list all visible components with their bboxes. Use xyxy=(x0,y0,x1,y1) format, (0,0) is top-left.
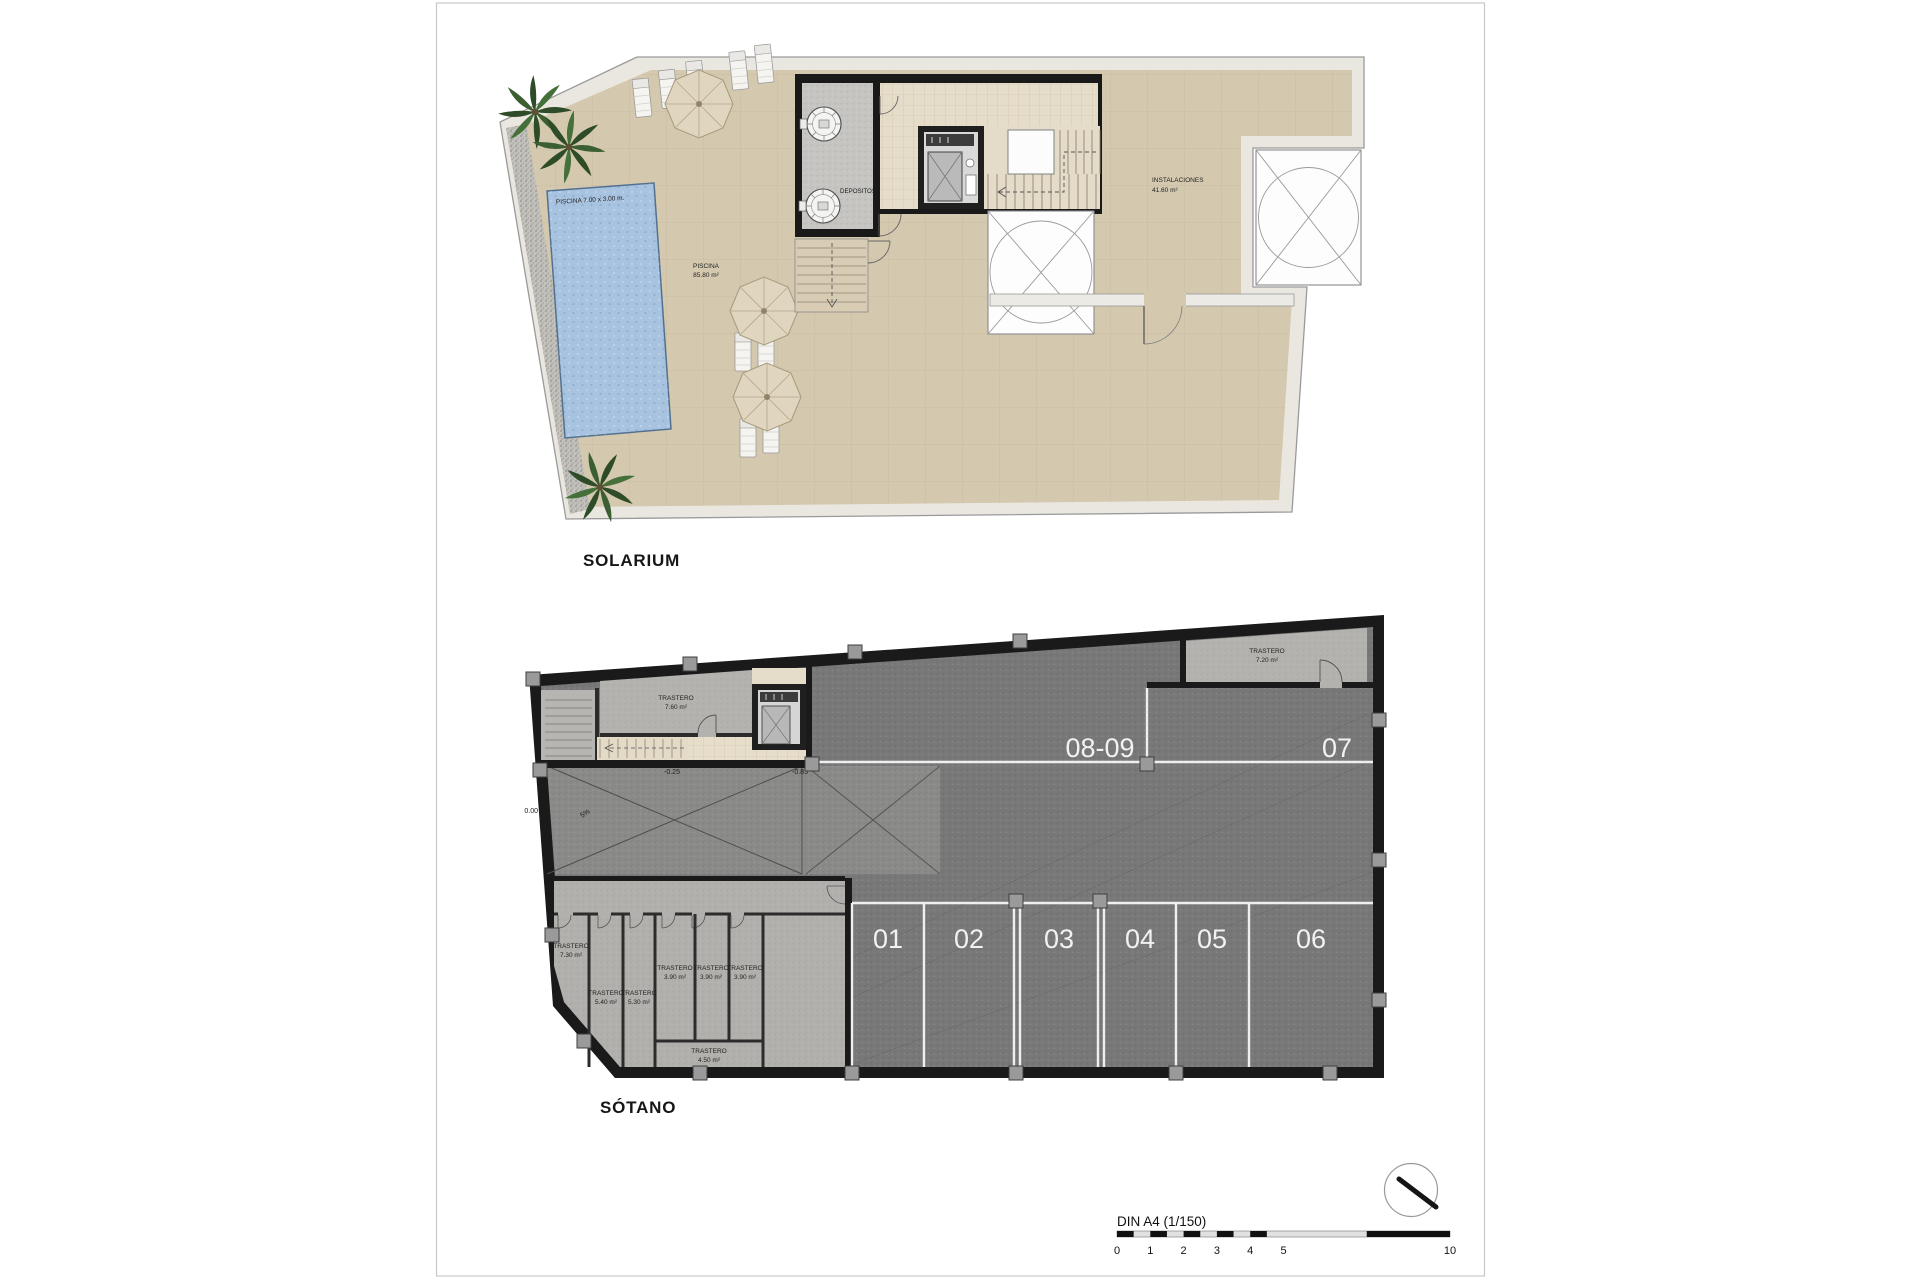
solarium-plan: PISCINA 7.00 x 3.00 m. PISCINA 85.80 m² xyxy=(493,44,1364,570)
parking-space-05: 05 xyxy=(1197,924,1227,954)
parking-space-0809: 08-09 xyxy=(1065,733,1134,763)
storeroom-area: 4.50 m² xyxy=(698,1057,721,1064)
sotano-title: SÓTANO xyxy=(600,1098,676,1117)
deck-label-name: PISCINA xyxy=(693,263,720,270)
storeroom-label: TRASTERO xyxy=(693,965,728,972)
storeroom-label: TRASTERO xyxy=(727,965,762,972)
storeroom-label: TRASTERO xyxy=(657,965,692,972)
storeroom-label: TRASTERO xyxy=(553,943,588,950)
svg-text:INSTALACIONES: INSTALACIONES xyxy=(1152,177,1204,184)
deck-label-area: 85.80 m² xyxy=(693,272,719,279)
level-ramp-upper: -0.25 xyxy=(664,769,680,776)
vent-shaft xyxy=(1256,150,1361,285)
svg-text:4: 4 xyxy=(1247,1245,1253,1257)
scale-format-label: DIN A4 (1/150) xyxy=(1117,1214,1206,1229)
storeroom-area: 3.90 m² xyxy=(734,974,757,981)
storeroom-area: 3.90 m² xyxy=(664,974,687,981)
svg-text:5: 5 xyxy=(1280,1245,1286,1257)
storeroom-area: 7.20 m² xyxy=(1256,657,1279,664)
pool: PISCINA 7.00 x 3.00 m. xyxy=(547,183,671,438)
storeroom-label: TRASTERO xyxy=(621,990,656,997)
svg-text:10: 10 xyxy=(1444,1245,1456,1257)
terrace-stairs xyxy=(795,239,868,312)
plan-drawing: PISCINA 7.00 x 3.00 m. PISCINA 85.80 m² xyxy=(0,0,1920,1280)
svg-text:3: 3 xyxy=(1214,1245,1220,1257)
storeroom-label: TRASTERO xyxy=(691,1048,726,1055)
sotano-plan: -0.25 -0.85 5% 0.00 TRASTERO 7.60 m² xyxy=(524,615,1386,1117)
storeroom-area: 7.30 m² xyxy=(560,952,583,959)
svg-text:2: 2 xyxy=(1181,1245,1187,1257)
north-indicator-icon xyxy=(1385,1164,1438,1217)
storeroom-area: 5.40 m² xyxy=(595,999,618,1006)
parasol-icon xyxy=(665,70,733,138)
ramp: -0.25 -0.85 5% xyxy=(547,766,940,874)
plan-sheet: PISCINA 7.00 x 3.00 m. PISCINA 85.80 m² xyxy=(0,0,1920,1280)
depositos-label: DEPOSITOS xyxy=(840,188,876,195)
svg-text:41.60 m²: 41.60 m² xyxy=(1152,187,1178,194)
storeroom-label: TRASTERO xyxy=(658,695,693,702)
solarium-title: SOLARIUM xyxy=(583,551,680,570)
roof-stairs xyxy=(984,126,1100,209)
parking-space-04: 04 xyxy=(1125,924,1155,954)
parking-space-02: 02 xyxy=(954,924,984,954)
parking-space-07: 07 xyxy=(1322,733,1352,763)
storeroom-label: TRASTERO xyxy=(588,990,623,997)
parking-space-01: 01 xyxy=(873,924,903,954)
storeroom-label: TRASTERO xyxy=(1249,648,1284,655)
storeroom-area: 5.30 m² xyxy=(628,999,651,1006)
storeroom-area: 7.60 m² xyxy=(665,704,688,711)
svg-text:0: 0 xyxy=(1114,1245,1120,1257)
parking-space-03: 03 xyxy=(1044,924,1074,954)
vent-shaft xyxy=(988,211,1094,334)
parasol-icon xyxy=(733,363,801,431)
parasol-icon xyxy=(730,277,798,345)
svg-text:1: 1 xyxy=(1147,1245,1153,1257)
storeroom-area: 3.90 m² xyxy=(700,974,723,981)
storage-block: TRASTERO 7.30 m² TRASTERO 5.40 m² TRASTE… xyxy=(553,876,852,1067)
parking-space-06: 06 xyxy=(1296,924,1326,954)
level-street: 0.00 xyxy=(524,808,538,815)
